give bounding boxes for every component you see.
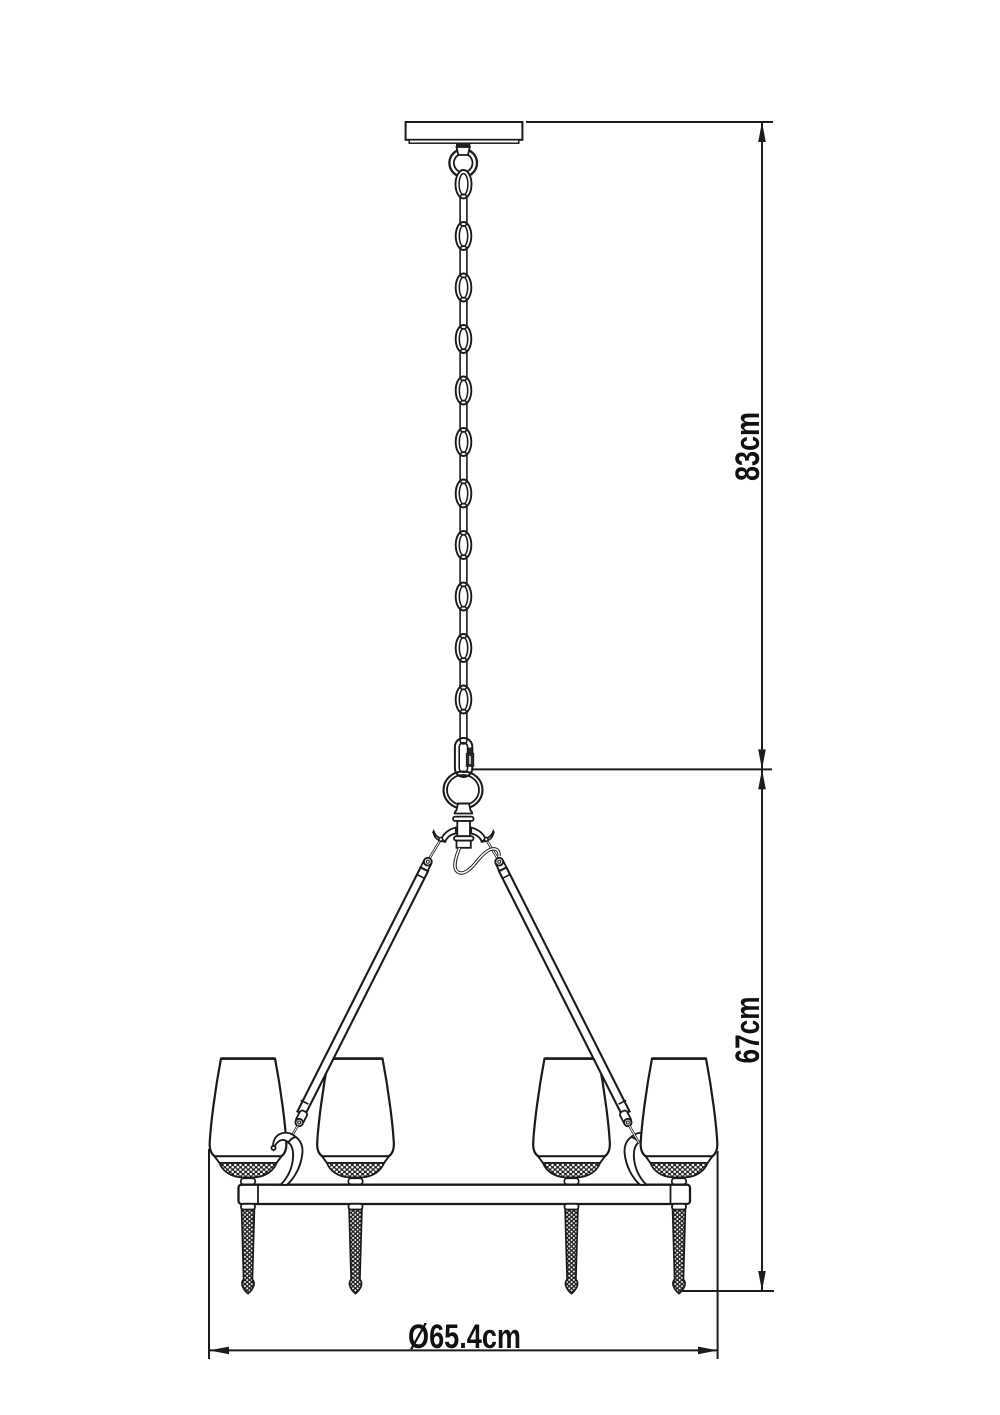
svg-text:67cm: 67cm xyxy=(729,997,767,1064)
svg-text:83cm: 83cm xyxy=(729,412,767,481)
svg-text:Ø65.4cm: Ø65.4cm xyxy=(408,1318,521,1356)
